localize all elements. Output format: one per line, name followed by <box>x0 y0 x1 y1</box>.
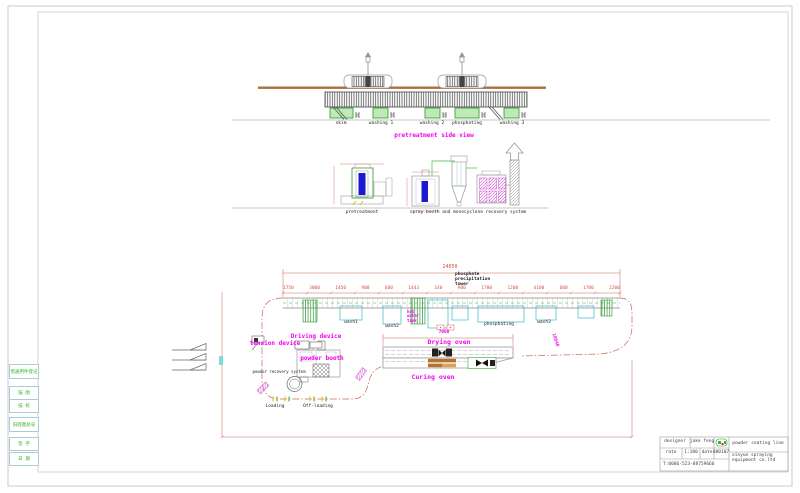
dim: 600 <box>385 286 393 291</box>
dim: 1750 <box>283 286 294 291</box>
strip-cell-old-drawing-no: 旧底图总号 <box>9 417 39 432</box>
tower-note-line: tower <box>455 283 490 288</box>
drying-oven-label: Drying oven <box>427 339 470 346</box>
curing-oven-label: Curing oven <box>411 374 454 381</box>
project-title: powder coating line <box>732 442 783 447</box>
elevation-linework <box>232 143 548 211</box>
dim: 4100 <box>533 286 544 291</box>
dim: 900 <box>361 286 369 291</box>
tank-label-washing1: washing 1 <box>369 122 393 127</box>
dim: 1443 <box>408 286 419 291</box>
spray-system-label: spray booth and monocyclone recovery sys… <box>410 211 527 216</box>
plan-tank-wash1: wash1 <box>344 321 358 326</box>
rate-label: rate <box>666 451 677 456</box>
spray-booth-elevation <box>407 143 523 211</box>
tank-label-skim: skim <box>336 122 347 127</box>
plan-tank-phosphating: phosphating <box>484 323 514 328</box>
hot-water-tank-note: hot water tank <box>407 310 419 323</box>
phone-number: T:0086-523-88759666 <box>663 463 714 468</box>
ovens <box>383 347 513 369</box>
strip-cell-signature: 签 字 <box>9 437 39 451</box>
tension-device-label: tension device <box>250 341 301 348</box>
dim: 1700 <box>583 286 594 291</box>
plan-overall-dimension: 24050 <box>442 265 457 271</box>
plan-conveyor-band <box>283 298 620 308</box>
conveyor-drive-1 <box>344 52 392 88</box>
company-line: equipment co.ltd <box>732 459 775 464</box>
designer-label: designer <box>664 440 686 445</box>
dim: 2200 <box>609 286 620 291</box>
loading-label: Loading <box>266 405 285 410</box>
date-value: 080107 <box>713 451 729 456</box>
plan-tank-wash2: wash2 <box>385 325 399 330</box>
side-view-title: pretreatment side view <box>394 133 473 140</box>
tower-note: phosphate precipitation tower <box>455 273 490 288</box>
tank-label-washing3: washing 3 <box>500 122 524 127</box>
dim: 1200 <box>507 286 518 291</box>
dim: 1450 <box>335 286 346 291</box>
cad-linework <box>0 0 800 493</box>
side-view-linework <box>232 52 770 120</box>
company-name: xinyue spraying equipment co.ltd <box>732 454 775 464</box>
drawing-sheet: skim washing 1 washing 2 phosphating was… <box>0 0 800 493</box>
drawing-frame <box>8 6 792 486</box>
drying-oven-dim: 7000 <box>439 331 450 336</box>
strip-cell-trace: 描 图 <box>9 386 39 400</box>
strip-cell-date: 日 期 <box>9 452 39 466</box>
dim: 3000 <box>309 286 320 291</box>
powder-booth-label: powder booth <box>300 356 343 363</box>
plan-segment-dimensions: 1750 3000 1450 900 600 1443 140 900 1700… <box>283 286 620 291</box>
strip-cell-borrow-record: 借通用件登记 <box>9 364 39 379</box>
rate-value: 1:100 <box>684 451 698 456</box>
tank-label-washing2: washing 2 <box>420 122 444 127</box>
plan-linework <box>172 269 634 439</box>
powder-recovery-label: powder recovery system <box>253 370 306 374</box>
pretreatment-elevation-label: pretreatment <box>346 211 379 216</box>
flow-arrows <box>172 344 206 371</box>
hot-water-line: tank <box>407 319 419 323</box>
powder-booth-plan <box>257 341 366 394</box>
conveyor-drive-2 <box>438 52 486 88</box>
date-label: date <box>702 451 713 456</box>
designer-value: jake feng <box>690 440 714 445</box>
company-logo <box>716 439 727 446</box>
tank-label-phosphating: phosphating <box>452 122 482 127</box>
dim: 600 <box>560 286 568 291</box>
pretreatment-elevation <box>334 164 392 205</box>
plan-tank-wash3: wash3 <box>537 321 551 326</box>
off-loading-label: Off-loading <box>303 405 333 410</box>
pretreatment-tanks <box>330 108 519 118</box>
dim: 140 <box>434 286 442 291</box>
strip-cell-check: 描 校 <box>9 399 39 413</box>
